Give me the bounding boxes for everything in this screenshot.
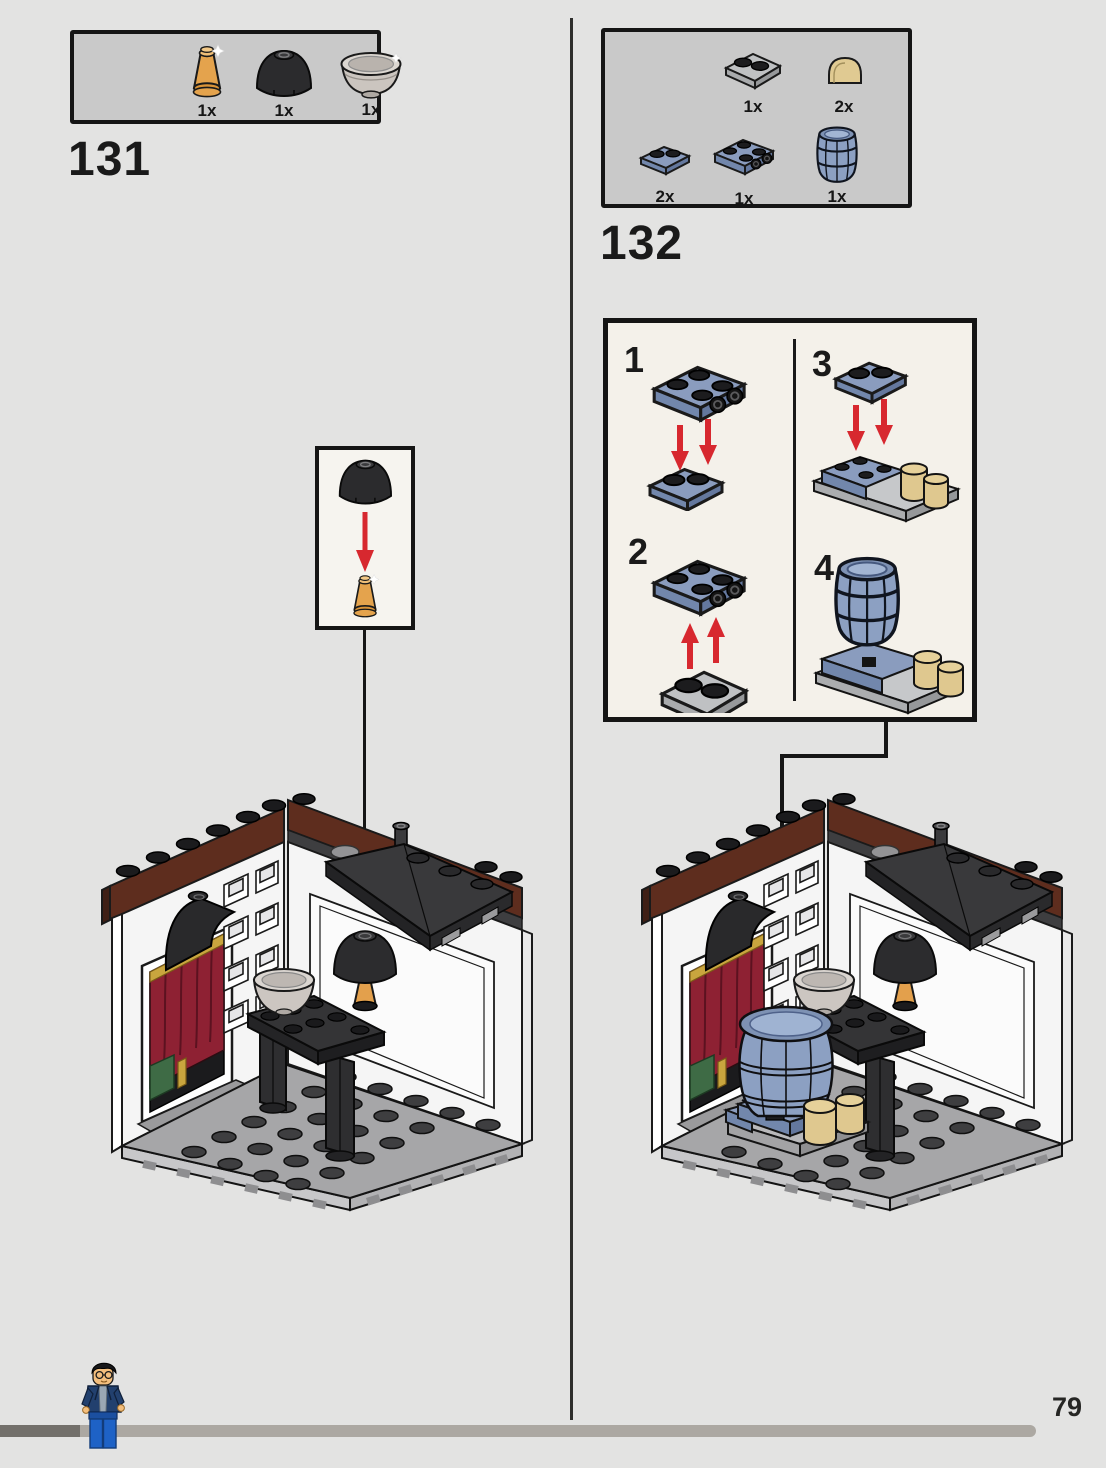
tan-half-cylinder-icon xyxy=(822,50,866,90)
subassembly-panel: 1 2 3 xyxy=(603,318,977,722)
part-count: 1x xyxy=(172,101,242,121)
callout-box xyxy=(315,446,415,630)
step-number-131: 131 xyxy=(68,132,151,187)
subassembly-connector-h xyxy=(780,754,888,758)
substep-3-diagram xyxy=(802,353,974,529)
subassembly-connector-v1 xyxy=(884,722,888,758)
part-count: 1x xyxy=(718,97,788,117)
parts-box-132: 1x 2x 2x 1x 1x xyxy=(601,28,912,208)
blue-barrel-icon xyxy=(812,124,862,184)
blue-bracket-plate-icon xyxy=(711,132,777,182)
substep-4-diagram xyxy=(802,545,978,721)
progress-minifigure xyxy=(80,1358,126,1452)
part-count: 1x xyxy=(336,100,406,120)
subassembly-divider xyxy=(793,339,796,701)
column-divider xyxy=(570,18,573,1420)
step-number-132: 132 xyxy=(600,216,683,271)
blue-plate-1x2-icon xyxy=(637,140,693,176)
progress-bar-remaining xyxy=(80,1425,1036,1437)
orange-cone-icon xyxy=(185,42,229,100)
page-number: 79 xyxy=(1052,1392,1082,1423)
callout-diagram xyxy=(319,450,411,626)
gray-plate-icon xyxy=(722,48,784,90)
part-count: 2x xyxy=(633,187,697,207)
substep-2-diagram xyxy=(630,545,790,713)
part-count: 2x xyxy=(815,97,873,117)
build-view-step-132 xyxy=(638,766,1078,1212)
parts-box-131: 1x 1x 1x xyxy=(70,30,381,124)
silver-bowl-icon xyxy=(338,47,404,99)
substep-1-diagram xyxy=(628,353,788,511)
part-count: 1x xyxy=(249,101,319,121)
black-dome-icon xyxy=(252,46,316,100)
progress-bar-done xyxy=(0,1425,80,1437)
part-count: 1x xyxy=(808,187,866,207)
instruction-page: { "page": {"number": "79"}, "s131": { "n… xyxy=(0,0,1106,1468)
part-count: 1x xyxy=(707,189,781,209)
build-view-step-131 xyxy=(98,766,538,1212)
